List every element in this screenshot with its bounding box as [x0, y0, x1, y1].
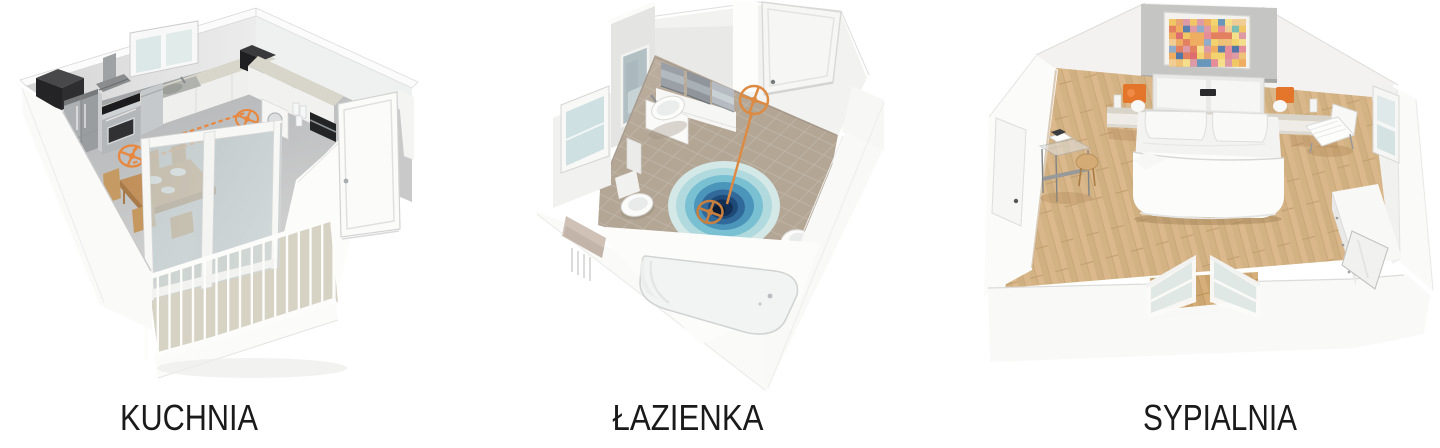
svg-text:KUCHNIA: KUCHNIA — [120, 397, 258, 438]
svg-text:SYPIALNIA: SYPIALNIA — [1143, 397, 1297, 438]
svg-text:ŁAZIENKA: ŁAZIENKA — [613, 397, 764, 438]
